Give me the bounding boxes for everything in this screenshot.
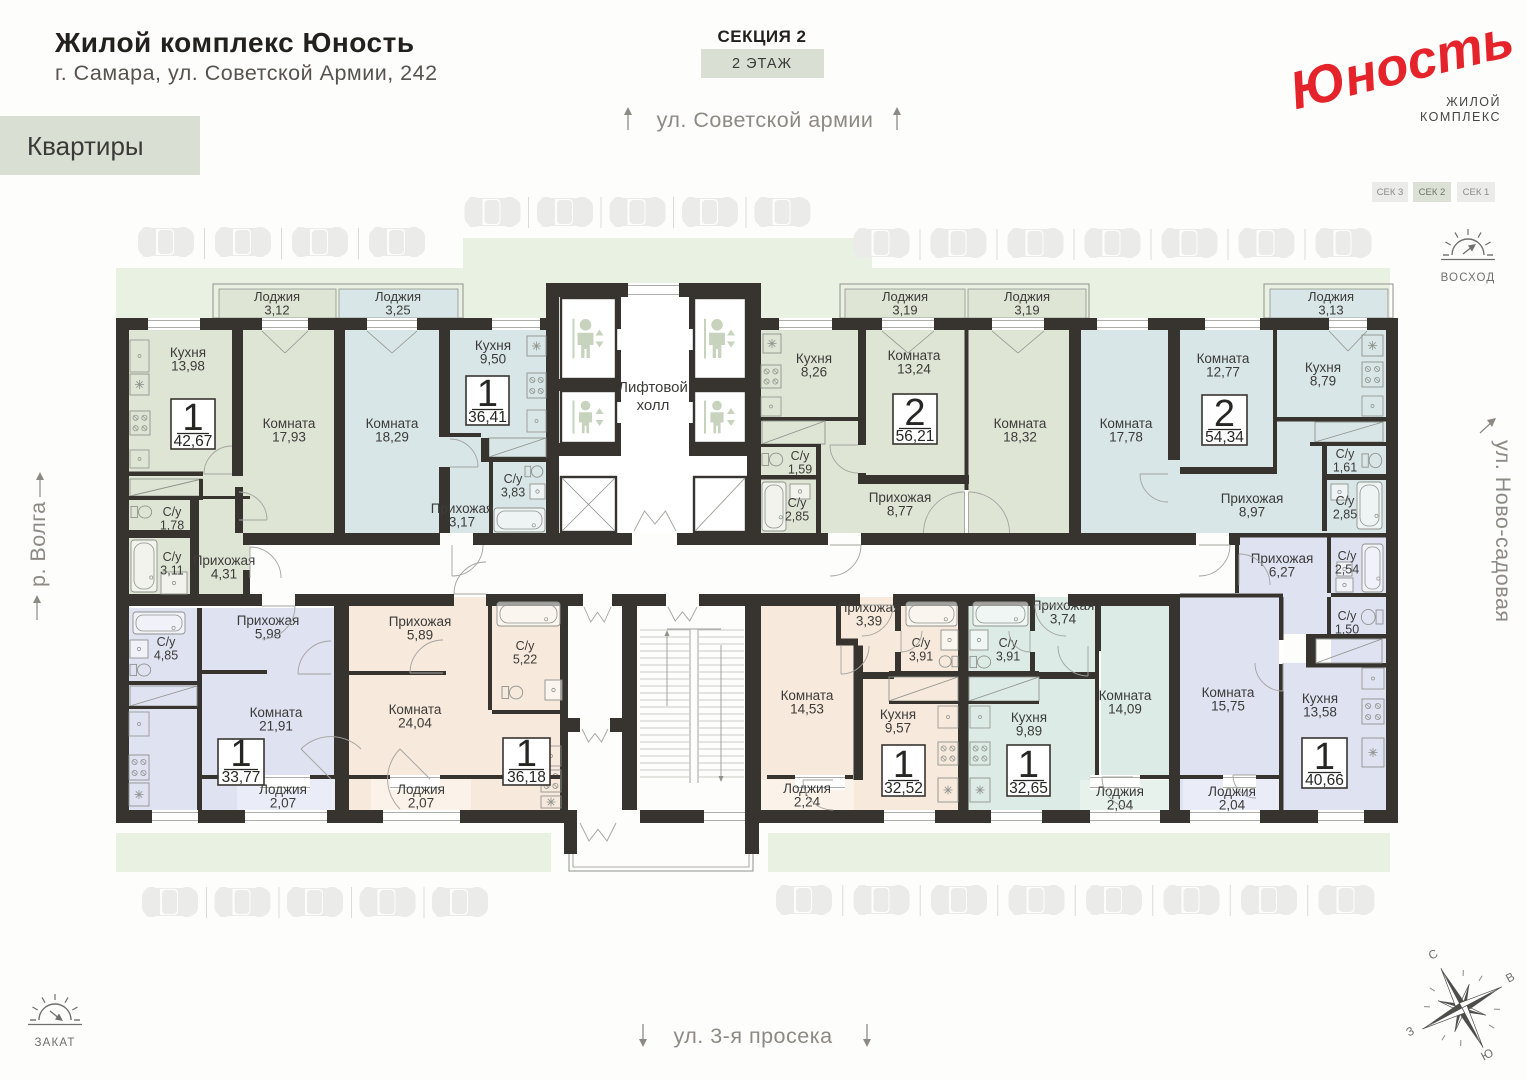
svg-text:С/у: С/у [1336,447,1356,461]
svg-text:36,18: 36,18 [507,769,546,786]
svg-text:3,19: 3,19 [1014,303,1039,318]
svg-text:СЕКЦИЯ 2: СЕКЦИЯ 2 [717,27,806,46]
svg-text:6,27: 6,27 [1269,565,1295,580]
svg-text:9,57: 9,57 [885,721,911,736]
svg-text:8,26: 8,26 [801,365,827,380]
svg-text:18,32: 18,32 [1003,430,1037,445]
svg-text:С/у: С/у [516,639,536,653]
svg-text:5,89: 5,89 [407,628,433,643]
svg-text:2,24: 2,24 [794,795,821,810]
svg-text:2,07: 2,07 [408,796,434,811]
svg-text:Квартиры: Квартиры [27,131,144,161]
svg-text:18,29: 18,29 [375,430,409,445]
svg-text:3,74: 3,74 [1050,612,1077,627]
svg-text:С/у: С/у [999,636,1019,650]
svg-text:17,78: 17,78 [1109,430,1143,445]
svg-text:2,07: 2,07 [270,796,296,811]
svg-text:С/у: С/у [912,636,932,650]
svg-text:ВОСХОД: ВОСХОД [1441,272,1496,284]
svg-text:С/у: С/у [163,505,183,519]
svg-text:2,04: 2,04 [1219,798,1246,813]
svg-text:3,19: 3,19 [892,303,917,318]
svg-text:1,78: 1,78 [160,519,184,533]
svg-text:С/у: С/у [163,550,183,564]
svg-text:С/у: С/у [504,472,524,486]
svg-text:42,67: 42,67 [174,433,213,450]
svg-text:2 ЭТАЖ: 2 ЭТАЖ [732,56,792,72]
svg-text:2,85: 2,85 [785,510,809,524]
svg-text:3,83: 3,83 [501,486,525,500]
svg-text:24,04: 24,04 [398,716,432,731]
svg-text:40,66: 40,66 [1305,772,1344,789]
svg-text:С/у: С/у [1338,549,1358,563]
svg-text:ЖИЛОЙ: ЖИЛОЙ [1446,94,1501,109]
svg-text:холл: холл [637,397,670,414]
svg-text:17,93: 17,93 [272,430,306,445]
svg-text:3,39: 3,39 [856,614,882,629]
svg-text:С/у: С/у [791,449,811,463]
svg-text:С/у: С/у [788,496,808,510]
svg-text:3,13: 3,13 [1318,303,1343,318]
svg-text:21,91: 21,91 [259,719,293,734]
svg-text:р. Волга: р. Волга [26,501,50,587]
svg-text:1,61: 1,61 [1333,461,1357,475]
svg-text:1,50: 1,50 [1335,623,1359,637]
svg-text:ул. Ново-садовая: ул. Ново-садовая [1491,440,1515,623]
svg-text:5,98: 5,98 [255,627,281,642]
svg-text:13,24: 13,24 [897,362,931,377]
svg-text:КОМПЛЕКС: КОМПЛЕКС [1420,110,1501,124]
svg-text:33,77: 33,77 [222,769,261,786]
svg-text:3,17: 3,17 [449,515,475,530]
svg-text:3,25: 3,25 [385,303,410,318]
svg-text:8,97: 8,97 [1239,505,1265,520]
svg-text:ул. Советской армии: ул. Советской армии [657,108,874,132]
svg-text:8,77: 8,77 [887,504,913,519]
svg-text:3,11: 3,11 [160,564,183,578]
svg-text:3,91: 3,91 [909,650,933,664]
svg-text:ул. 3-я просека: ул. 3-я просека [673,1024,832,1048]
svg-text:9,89: 9,89 [1016,724,1042,739]
svg-text:Лифтовой: Лифтовой [618,379,688,396]
svg-text:Жилой комплекс Юность: Жилой комплекс Юность [54,27,415,58]
svg-text:ЗАКАТ: ЗАКАТ [34,1037,75,1049]
svg-text:32,52: 32,52 [884,780,923,797]
svg-text:14,09: 14,09 [1108,702,1142,717]
svg-text:СЕК 3: СЕК 3 [1377,187,1404,198]
svg-text:2,54: 2,54 [1335,563,1359,577]
svg-text:14,53: 14,53 [790,702,824,717]
svg-text:54,34: 54,34 [1205,429,1244,446]
svg-text:г. Самара, ул. Советской Армии: г. Самара, ул. Советской Армии, 242 [55,61,438,85]
svg-text:2,85: 2,85 [1333,508,1357,522]
svg-text:С/у: С/у [157,635,177,649]
svg-text:4,31: 4,31 [211,567,237,582]
svg-text:1,59: 1,59 [788,463,812,477]
svg-text:12,77: 12,77 [1206,365,1240,380]
svg-text:5,22: 5,22 [513,653,537,667]
svg-text:13,98: 13,98 [171,359,205,374]
svg-text:8,79: 8,79 [1310,374,1336,389]
svg-text:СЕК 2: СЕК 2 [1419,187,1446,198]
svg-text:СЕК 1: СЕК 1 [1463,187,1490,198]
svg-text:С/у: С/у [1338,609,1358,623]
svg-text:3,91: 3,91 [996,650,1020,664]
svg-text:15,75: 15,75 [1211,699,1245,714]
svg-text:13,58: 13,58 [1303,705,1337,720]
svg-text:4,85: 4,85 [154,649,178,663]
svg-text:36,41: 36,41 [468,409,507,426]
svg-text:С/у: С/у [1336,494,1356,508]
svg-text:56,21: 56,21 [896,428,935,445]
svg-text:9,50: 9,50 [480,352,506,367]
svg-text:3,12: 3,12 [264,303,289,318]
svg-text:32,65: 32,65 [1009,780,1048,797]
